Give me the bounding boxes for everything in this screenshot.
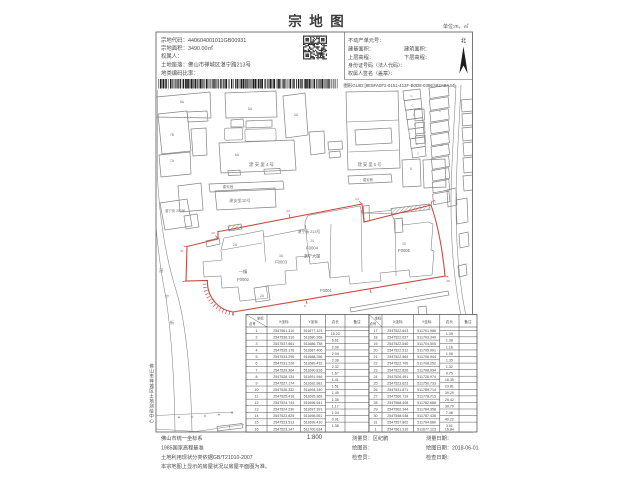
- svg-text:511698.551: 511698.551: [304, 414, 323, 418]
- svg-text:街: 街: [170, 319, 174, 326]
- svg-text:8: 8: [410, 167, 412, 171]
- svg-text:2547523.623: 2547523.623: [387, 381, 408, 385]
- svg-text:511677.123: 511677.123: [417, 427, 436, 431]
- svg-text:26: 26: [446, 279, 450, 283]
- svg-text:23: 23: [286, 209, 290, 213]
- svg-text:2547560.719: 2547560.719: [387, 395, 408, 399]
- svg-text:1.32: 1.32: [446, 365, 453, 369]
- svg-text:21: 21: [180, 249, 184, 253]
- svg-text:2547529.364: 2547529.364: [273, 368, 294, 372]
- svg-text:0.75: 0.75: [446, 372, 453, 376]
- svg-text:6.61: 6.61: [332, 339, 339, 343]
- svg-text:9A: 9A: [180, 100, 185, 104]
- svg-text:坐标: 坐标: [374, 316, 381, 321]
- svg-text:511690.816: 511690.816: [304, 368, 323, 372]
- svg-text:建安里6号: 建安里6号: [357, 161, 382, 168]
- svg-text:北: 北: [461, 37, 467, 45]
- svg-text:29: 29: [374, 408, 378, 412]
- svg-text:地类编码比率：: 地类编码比率：: [161, 69, 199, 77]
- svg-text:511703.349: 511703.349: [417, 335, 436, 339]
- svg-text:511750.733: 511750.733: [417, 381, 436, 385]
- svg-text:7: 7: [405, 287, 407, 291]
- svg-text:2547526.332: 2547526.332: [273, 388, 294, 392]
- svg-text:16: 16: [255, 427, 259, 431]
- svg-text:土地利用现状分类依据GB/T21010-2007: 土地利用现状分类依据GB/T21010-2007: [161, 453, 253, 461]
- svg-text:3: 3: [256, 342, 258, 346]
- svg-text:0.91: 0.91: [332, 417, 339, 421]
- svg-text:15: 15: [255, 421, 259, 425]
- svg-text:1.35: 1.35: [446, 358, 453, 362]
- svg-text:Y坐标: Y坐标: [308, 319, 318, 324]
- svg-text:511688.256: 511688.256: [304, 355, 323, 359]
- svg-text:2547523.513: 2547523.513: [273, 421, 294, 425]
- svg-text:绘图员：: 绘图员：: [352, 444, 373, 452]
- svg-text:10: 10: [255, 388, 259, 392]
- svg-text:30: 30: [374, 414, 378, 418]
- svg-text:23.81: 23.81: [445, 385, 454, 389]
- svg-text:1: 1: [256, 329, 258, 333]
- svg-text:2547525.418: 2547525.418: [273, 395, 294, 399]
- svg-text:2547531.871: 2547531.871: [387, 388, 408, 392]
- svg-text:1985国家高程基准: 1985国家高程基准: [161, 444, 204, 452]
- svg-text:C: C: [413, 113, 416, 117]
- svg-text:身份证号码（法人代码）：: 身份证号码（法人代码）：: [348, 62, 406, 69]
- svg-text:23: 23: [374, 368, 378, 372]
- svg-text:湛宁街 213号: 湛宁街 213号: [298, 229, 321, 234]
- svg-text:511787.438: 511787.438: [417, 414, 436, 418]
- svg-text:宗 地 图: 宗 地 图: [288, 13, 344, 29]
- svg-text:宗地代码：440604001011GB00931: 宗地代码：440604001011GB00931: [161, 36, 246, 44]
- svg-text:7.46: 7.46: [446, 411, 453, 415]
- svg-text:511696.541: 511696.541: [304, 401, 323, 405]
- svg-text:2547533.295: 2547533.295: [273, 355, 294, 359]
- svg-text:511708.252: 511708.252: [417, 362, 436, 366]
- svg-text:建安里4号: 建安里4号: [249, 161, 275, 168]
- svg-text:31: 31: [374, 421, 378, 425]
- svg-text:宗地面积：3490.00㎡: 宗地面积：3490.00㎡: [161, 44, 213, 52]
- svg-text:2547522.705: 2547522.705: [387, 362, 408, 366]
- svg-text:511700.634: 511700.634: [304, 427, 323, 431]
- svg-text:2547528.134: 2547528.134: [273, 375, 294, 379]
- svg-text:6: 6: [256, 362, 258, 366]
- svg-text:2547537.661: 2547537.661: [273, 342, 294, 346]
- svg-text:F0001: F0001: [320, 288, 333, 293]
- svg-text:点号: 点号: [370, 321, 377, 326]
- svg-text:511692.981: 511692.981: [304, 381, 323, 385]
- svg-text:宁: 宁: [165, 293, 169, 299]
- svg-text:511677.123: 511677.123: [304, 329, 323, 333]
- svg-text:2A: 2A: [260, 294, 265, 298]
- svg-text:18.35: 18.35: [445, 378, 454, 382]
- svg-text:1.45: 1.45: [332, 391, 339, 395]
- svg-text:2547561.310: 2547561.310: [273, 329, 294, 333]
- svg-text:单位:m，㎡: 单位:m，㎡: [443, 23, 469, 30]
- svg-text:8: 8: [256, 375, 258, 379]
- svg-text:511782.688: 511782.688: [417, 401, 436, 405]
- svg-text:9: 9: [256, 381, 258, 385]
- svg-text:1.16: 1.16: [446, 345, 453, 349]
- svg-text:2547536.310: 2547536.310: [273, 335, 294, 339]
- svg-text:2547531.226: 2547531.226: [273, 362, 294, 366]
- svg-text:12: 12: [255, 401, 259, 405]
- svg-text:测量员：区纪鹏: 测量员：区纪鹏: [352, 434, 388, 442]
- svg-text:3A: 3A: [294, 113, 299, 117]
- svg-text:2547522.643: 2547522.643: [387, 329, 408, 333]
- svg-text:检查员：: 检查员：: [352, 453, 373, 461]
- svg-text:24: 24: [310, 239, 314, 243]
- svg-text:F0004: F0004: [306, 246, 319, 251]
- svg-text:14: 14: [255, 414, 259, 418]
- svg-text:21: 21: [374, 355, 378, 359]
- svg-text:湛: 湛: [159, 267, 163, 274]
- svg-text:18: 18: [374, 335, 378, 339]
- svg-text:20: 20: [374, 349, 378, 353]
- svg-text:建基面积：: 建基面积：: [348, 45, 374, 53]
- svg-text:检查日期：: 检查日期：: [426, 453, 452, 461]
- svg-text:17: 17: [374, 329, 378, 333]
- svg-text:511691.946: 511691.946: [304, 375, 323, 379]
- svg-text:F0003: F0003: [275, 260, 288, 265]
- svg-text:4: 4: [256, 349, 258, 353]
- svg-text:点号: 点号: [249, 321, 256, 326]
- svg-text:13: 13: [255, 408, 259, 412]
- svg-text:2547535.176: 2547535.176: [273, 349, 294, 353]
- svg-text:25: 25: [374, 381, 378, 385]
- svg-text:2.32: 2.32: [332, 365, 339, 369]
- svg-text:11: 11: [255, 395, 259, 399]
- svg-text:511697.391: 511697.391: [304, 408, 323, 412]
- svg-text:建安巷: 建安巷: [363, 177, 374, 182]
- svg-text:2547561.310: 2547561.310: [387, 427, 408, 431]
- svg-text:2: 2: [256, 335, 258, 339]
- svg-text:2547526.491: 2547526.491: [387, 375, 408, 379]
- svg-text:7B: 7B: [170, 133, 175, 137]
- svg-text:一幢: 一幢: [239, 268, 248, 275]
- svg-text:511689.432: 511689.432: [304, 362, 323, 366]
- svg-text:5: 5: [256, 355, 258, 359]
- svg-text:26: 26: [402, 242, 406, 246]
- svg-text:22: 22: [211, 231, 215, 235]
- svg-text:2547522.564: 2547522.564: [387, 355, 408, 359]
- svg-text:39.29: 39.29: [445, 391, 454, 395]
- svg-text:F0002: F0002: [237, 277, 250, 282]
- svg-text:F0005: F0005: [398, 248, 411, 253]
- svg-text:不动产单元号：: 不动产单元号：: [348, 36, 384, 44]
- svg-text:备注: 备注: [464, 319, 472, 324]
- svg-text:511687.406: 511687.406: [304, 349, 323, 353]
- svg-text:Y坐标: Y坐标: [422, 319, 432, 324]
- svg-text:2547523.825: 2547523.825: [273, 414, 294, 418]
- svg-text:6: 6: [304, 304, 306, 308]
- svg-text:权属人：: 权属人：: [161, 52, 183, 60]
- svg-text:佛山市统一坐标系: 佛山市统一坐标系: [161, 434, 203, 442]
- svg-text:511726.974: 511726.974: [417, 375, 436, 379]
- svg-text:建安里10号: 建安里10号: [229, 197, 250, 204]
- svg-text:图形GUID:[9E5FA0F2-0151-413F-B0D: 图形GUID:[9E5FA0F2-0151-413F-B0D8-039E382A…: [344, 82, 456, 89]
- svg-text:边长: 边长: [446, 319, 454, 324]
- svg-text:C: C: [412, 104, 415, 108]
- svg-text:湛宁大厦: 湛宁大厦: [304, 253, 321, 260]
- svg-text:X坐标: X坐标: [393, 319, 403, 324]
- svg-text:备注: 备注: [353, 319, 361, 324]
- svg-text:1.38: 1.38: [332, 424, 339, 428]
- svg-text:511706.944: 511706.944: [417, 355, 436, 359]
- svg-text:1.08: 1.08: [446, 352, 453, 356]
- svg-text:40.22: 40.22: [445, 417, 454, 421]
- svg-text:测量日期：: 测量日期：: [426, 434, 452, 442]
- svg-text:1:800: 1:800: [307, 435, 323, 441]
- svg-text:X坐标: X坐标: [279, 319, 289, 324]
- svg-text:511699.410: 511699.410: [304, 421, 323, 425]
- svg-text:边长: 边长: [332, 319, 340, 324]
- svg-text:7A: 7A: [170, 159, 175, 163]
- svg-text:2547524.230: 2547524.230: [273, 408, 294, 412]
- svg-text:1.41: 1.41: [332, 378, 339, 382]
- svg-text:15.23: 15.23: [331, 332, 340, 336]
- svg-text:25: 25: [432, 199, 436, 203]
- svg-text:2547562.344: 2547562.344: [387, 408, 408, 412]
- svg-text:511695.369: 511695.369: [304, 395, 323, 399]
- svg-text:建安巷: 建安巷: [223, 184, 234, 189]
- svg-text:1.67: 1.67: [332, 372, 339, 376]
- svg-text:上层高程：: 上层高程：: [348, 53, 374, 61]
- svg-text:511789.714: 511789.714: [417, 388, 436, 392]
- svg-text:1.51: 1.51: [332, 385, 339, 389]
- svg-text:2547522.512: 2547522.512: [387, 349, 408, 353]
- svg-text:2547568.408: 2547568.408: [387, 401, 408, 405]
- svg-text:29.42: 29.42: [445, 398, 454, 402]
- svg-text:1.38: 1.38: [446, 339, 453, 343]
- svg-text:26: 26: [374, 388, 378, 392]
- svg-text:511680.268: 511680.268: [304, 335, 323, 339]
- svg-text:2547524.744: 2547524.744: [273, 401, 294, 405]
- svg-text:2.99: 2.99: [332, 345, 339, 349]
- svg-text:511694.140: 511694.140: [304, 388, 323, 392]
- svg-text:C: C: [410, 94, 413, 98]
- svg-text:C: C: [417, 151, 420, 155]
- svg-text:2547557.802: 2547557.802: [387, 421, 408, 425]
- svg-text:28: 28: [374, 401, 378, 405]
- svg-text:2A: 2A: [233, 243, 238, 247]
- svg-text:7: 7: [256, 368, 258, 372]
- svg-text:16.84: 16.84: [445, 427, 454, 431]
- svg-text:本宗地图上显示的房屋状况以房屋平面图为准。: 本宗地图上显示的房屋状况以房屋平面图为准。: [161, 462, 270, 470]
- svg-text:1.35: 1.35: [332, 398, 339, 402]
- svg-text:1.04: 1.04: [332, 411, 339, 415]
- svg-text:511704.505: 511704.505: [417, 342, 436, 346]
- svg-text:24: 24: [374, 375, 378, 379]
- svg-text:27: 27: [374, 395, 378, 399]
- svg-text:1.39: 1.39: [446, 332, 453, 336]
- svg-text:511794.660: 511794.660: [417, 421, 436, 425]
- svg-text:建筑面积：: 建筑面积：: [404, 45, 430, 53]
- svg-text:心: 心: [149, 418, 154, 424]
- svg-text:1: 1: [375, 427, 377, 431]
- svg-text:5A: 5A: [248, 107, 253, 111]
- svg-text:24: 24: [355, 197, 359, 201]
- svg-text:下层高程：: 下层高程：: [404, 53, 430, 61]
- svg-text:坐标: 坐标: [257, 316, 264, 321]
- svg-text:2547522.826: 2547522.826: [387, 368, 408, 372]
- svg-text:39.70: 39.70: [445, 404, 454, 408]
- svg-text:权属人签名（盖章）：: 权属人签名（盖章）：: [348, 70, 396, 77]
- svg-text:511686.738: 511686.738: [304, 342, 323, 346]
- svg-text:绘图日期：2018-06-01: 绘图日期：2018-06-01: [426, 444, 479, 452]
- svg-text:511705.091: 511705.091: [417, 349, 436, 353]
- svg-text:湛宁街 200号: 湛宁街 200号: [165, 208, 186, 213]
- svg-text:511778.715: 511778.715: [417, 395, 436, 399]
- svg-text:2547522.637: 2547522.637: [387, 335, 408, 339]
- svg-text:土地座落：佛山市禅城区湛宁路213号: 土地座落：佛山市禅城区湛宁路213号: [161, 61, 251, 69]
- svg-text:1.17: 1.17: [332, 404, 339, 408]
- svg-text:3A: 3A: [279, 254, 284, 258]
- svg-text:2547522.540: 2547522.540: [387, 342, 408, 346]
- svg-text:2547527.174: 2547527.174: [273, 381, 294, 385]
- svg-text:22: 22: [374, 362, 378, 366]
- svg-text:2547523.147: 2547523.147: [273, 427, 294, 431]
- svg-text:6A: 6A: [235, 153, 240, 157]
- svg-text:2.04: 2.04: [332, 352, 339, 356]
- svg-text:511708.994: 511708.994: [417, 368, 436, 372]
- svg-text:2.38: 2.38: [332, 358, 339, 362]
- svg-text:19: 19: [374, 342, 378, 346]
- svg-text:511701.986: 511701.986: [417, 329, 436, 333]
- svg-text:2547548.038: 2547548.038: [387, 414, 408, 418]
- svg-text:511784.358: 511784.358: [417, 408, 436, 412]
